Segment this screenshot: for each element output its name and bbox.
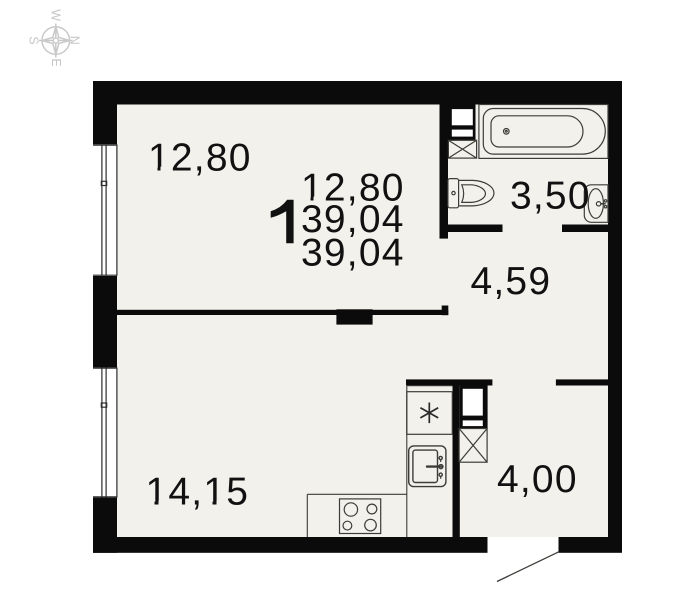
svg-text:4,59: 4,59 [471, 260, 552, 303]
svg-text:39,04: 39,04 [301, 232, 405, 275]
svg-text:E: E [49, 58, 63, 66]
svg-text:4,00: 4,00 [497, 458, 578, 501]
svg-text:W: W [48, 9, 62, 21]
svg-text:12,80: 12,80 [148, 137, 252, 180]
svg-text:14,15: 14,15 [146, 471, 250, 514]
svg-text:N: N [67, 36, 81, 45]
svg-text:S: S [27, 36, 41, 44]
svg-text:3,50: 3,50 [510, 175, 591, 218]
